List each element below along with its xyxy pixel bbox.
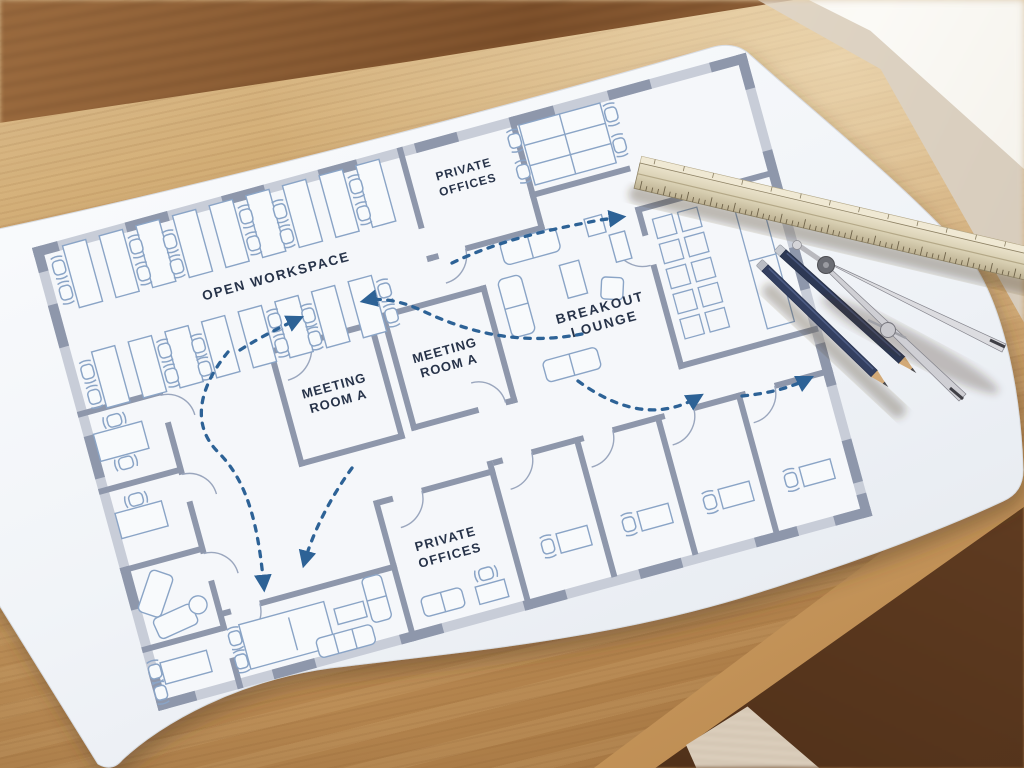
blueprint-artwork: OPEN WORKSPACE PRIVATE OFFICES BREAKOUT … [0,0,1024,768]
compass-hinge-pin [823,262,829,268]
compass-handle-knob [793,241,802,250]
compass-adjuster-wheel [881,323,896,338]
drafting-desk-scene: OPEN WORKSPACE PRIVATE OFFICES BREAKOUT … [0,0,1024,768]
floor-plan: OPEN WORKSPACE PRIVATE OFFICES BREAKOUT … [32,53,872,711]
